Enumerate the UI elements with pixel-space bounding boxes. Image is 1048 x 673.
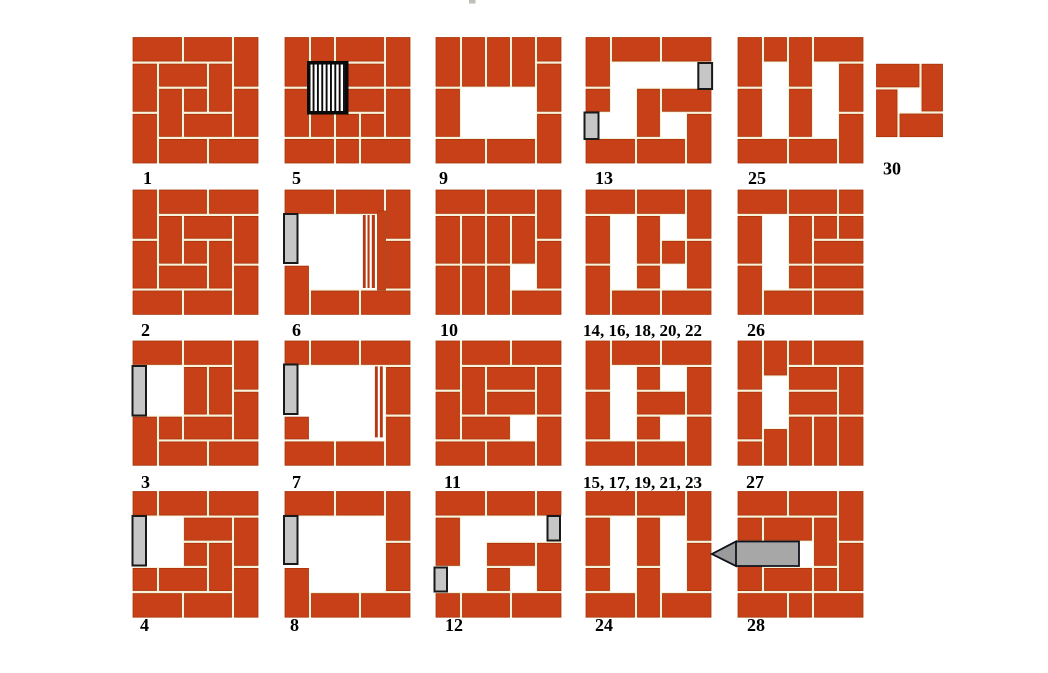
svg-text:2: 2 [141, 320, 150, 340]
svg-text:7: 7 [292, 472, 301, 492]
svg-text:30: 30 [883, 159, 901, 179]
svg-text:27: 27 [746, 472, 764, 492]
svg-text:28: 28 [747, 615, 765, 635]
svg-text:10: 10 [440, 320, 458, 340]
svg-text:4: 4 [140, 615, 149, 635]
svg-text:26: 26 [747, 320, 765, 340]
svg-text:12: 12 [445, 615, 463, 635]
svg-text:11: 11 [444, 472, 461, 492]
svg-text:13: 13 [595, 168, 613, 188]
svg-text:3: 3 [141, 472, 150, 492]
svg-text:6: 6 [292, 320, 301, 340]
svg-text:9: 9 [439, 168, 448, 188]
svg-text:8: 8 [290, 615, 299, 635]
svg-text:14, 16, 18, 20, 22: 14, 16, 18, 20, 22 [583, 321, 702, 340]
svg-text:25: 25 [748, 168, 766, 188]
svg-text:1: 1 [143, 168, 152, 188]
svg-text:24: 24 [595, 615, 613, 635]
svg-text:5: 5 [292, 168, 301, 188]
svg-text:15, 17, 19, 21, 23: 15, 17, 19, 21, 23 [583, 473, 702, 492]
